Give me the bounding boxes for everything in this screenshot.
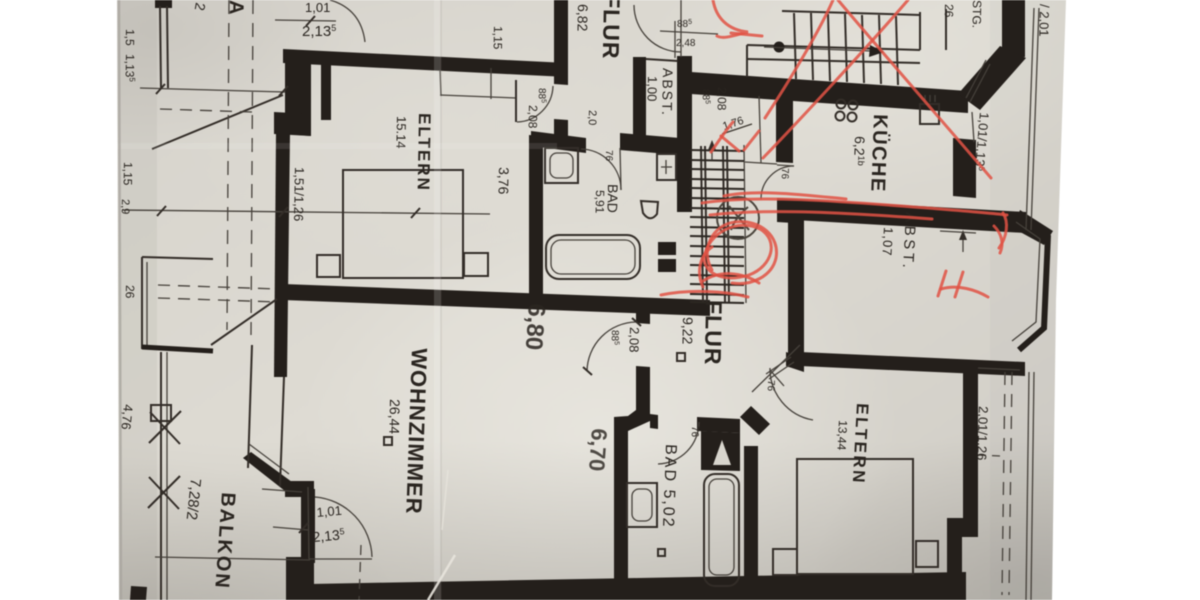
svg-text:76: 76 — [779, 168, 790, 180]
svg-text:ABST.: ABST. — [899, 212, 919, 272]
svg-text:1,01: 1,01 — [305, 0, 330, 15]
svg-text:6,80: 6,80 — [520, 303, 550, 351]
svg-text:13,44: 13,44 — [834, 420, 850, 451]
svg-text:2,48: 2,48 — [676, 38, 696, 49]
svg-text:2,08: 2,08 — [627, 327, 642, 353]
svg-text:26: 26 — [942, 4, 956, 18]
svg-text:76: 76 — [689, 426, 700, 438]
svg-text:26: 26 — [123, 285, 137, 299]
svg-text:/ 2,01: / 2,01 — [1036, 4, 1052, 37]
svg-text:1,15: 1,15 — [491, 26, 505, 50]
svg-text:ABST.: ABST. — [659, 68, 676, 117]
svg-text:2,0: 2,0 — [586, 110, 598, 126]
svg-text:6,82: 6,82 — [575, 4, 591, 32]
svg-text:76: 76 — [765, 380, 776, 392]
svg-text:FLUR: FLUR — [700, 300, 727, 366]
svg-text:A: A — [225, 0, 247, 15]
svg-text:1,5: 1,5 — [123, 29, 137, 46]
svg-text:9,22: 9,22 — [680, 317, 696, 345]
svg-text:1,07: 1,07 — [879, 227, 896, 257]
svg-text:3,76: 3,76 — [496, 167, 512, 195]
svg-text:5,91: 5,91 — [593, 190, 607, 214]
svg-text:STG.: STG. — [970, 0, 984, 28]
svg-text:2,08: 2,08 — [526, 105, 540, 129]
svg-text:1,01: 1,01 — [316, 503, 343, 520]
svg-text:1,00: 1,00 — [645, 76, 660, 102]
svg-text:76: 76 — [603, 150, 614, 162]
svg-text:BAD 5,02: BAD 5,02 — [659, 444, 679, 529]
svg-text:KÜCHE: KÜCHE — [866, 114, 892, 193]
svg-text:ELTERN: ELTERN — [414, 113, 434, 192]
svg-text:1,51/1,26: 1,51/1,26 — [291, 167, 307, 221]
svg-text:FLUR: FLUR — [598, 0, 625, 60]
svg-text:2,135: 2,135 — [302, 23, 336, 40]
svg-text:2,08: 2,08 — [715, 87, 729, 111]
svg-text:6,70: 6,70 — [584, 428, 612, 472]
svg-text:1,15: 1,15 — [121, 162, 135, 186]
svg-text:2,01/1,26: 2,01/1,26 — [974, 406, 991, 461]
svg-text:26,44: 26,44 — [386, 399, 403, 435]
